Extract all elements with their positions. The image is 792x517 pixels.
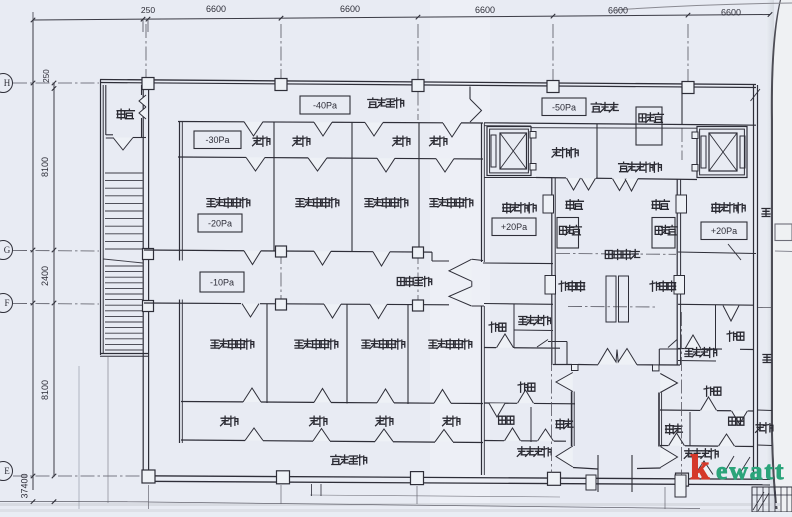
svg-text:2400: 2400 — [40, 266, 50, 286]
svg-text:8100: 8100 — [40, 380, 50, 400]
svg-text:250: 250 — [141, 5, 155, 15]
svg-text:250: 250 — [42, 69, 51, 83]
svg-text:37400: 37400 — [20, 473, 30, 498]
svg-text:ewatt: ewatt — [716, 456, 785, 485]
svg-text:6600: 6600 — [206, 4, 226, 14]
svg-text:-50Pa: -50Pa — [552, 103, 576, 113]
svg-text:-10Pa: -10Pa — [210, 278, 234, 288]
svg-text:k: k — [690, 448, 710, 487]
svg-text:+20Pa: +20Pa — [501, 222, 527, 232]
svg-text:-40Pa: -40Pa — [313, 101, 337, 111]
svg-text:6600: 6600 — [608, 6, 628, 16]
svg-text:E: E — [4, 466, 10, 476]
svg-text:G: G — [4, 245, 11, 255]
svg-text:6600: 6600 — [721, 8, 741, 18]
svg-text:6600: 6600 — [475, 5, 495, 15]
svg-text:8100: 8100 — [40, 157, 50, 177]
svg-text:H: H — [4, 78, 11, 88]
svg-text:-20Pa: -20Pa — [208, 219, 232, 229]
svg-text:6600: 6600 — [340, 4, 360, 14]
svg-text:F: F — [4, 298, 9, 308]
svg-text:+20Pa: +20Pa — [711, 226, 737, 236]
svg-text:-30Pa: -30Pa — [205, 135, 229, 145]
